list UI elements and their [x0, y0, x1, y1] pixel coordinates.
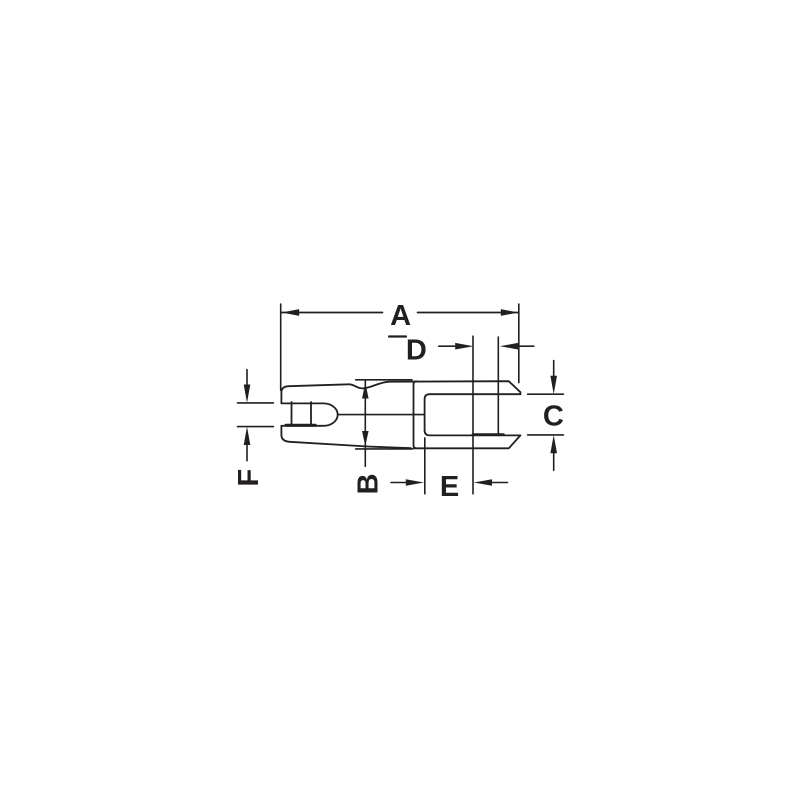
svg-text:C: C — [543, 401, 564, 433]
svg-text:A: A — [390, 300, 411, 332]
svg-text:E: E — [440, 471, 459, 503]
svg-text:F: F — [233, 469, 265, 487]
svg-text:D: D — [406, 335, 427, 367]
svg-text:B: B — [353, 473, 385, 494]
